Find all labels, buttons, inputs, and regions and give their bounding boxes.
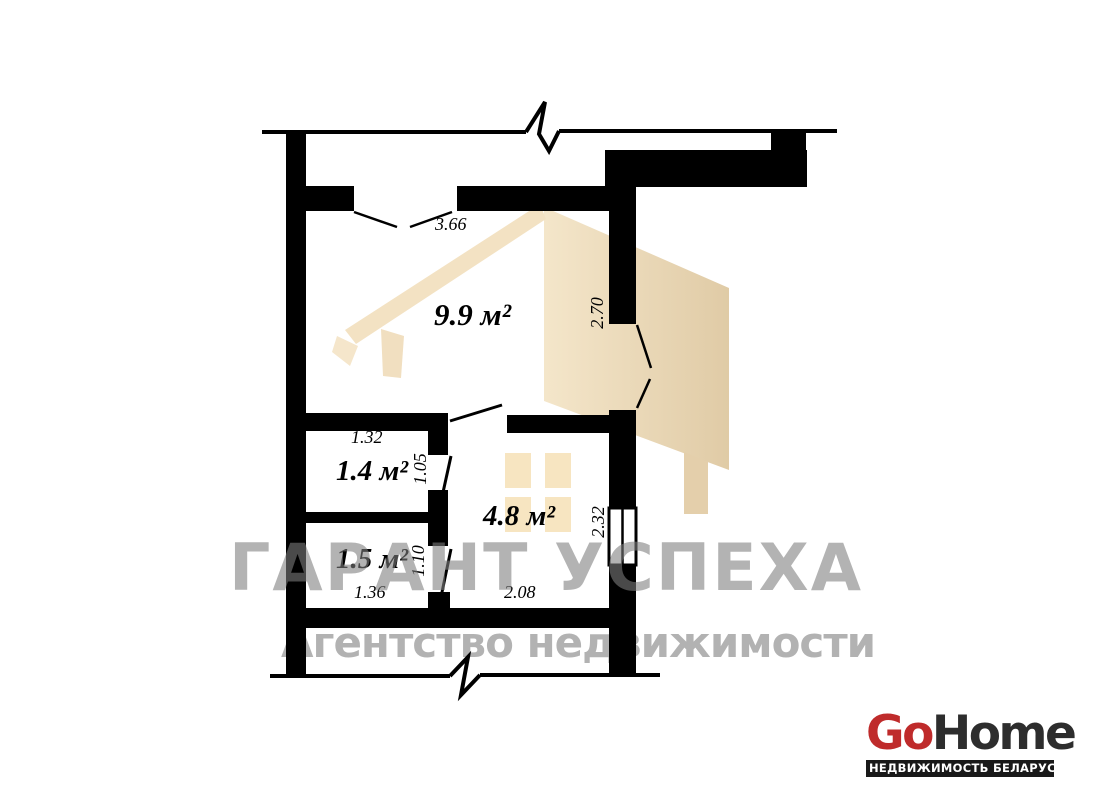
cut-line-top [262,102,837,151]
floor-plan-page: 9.9 м² 1.4 м² 1.5 м² 4.8 м² 3.66 2.70 1.… [0,0,1100,800]
dimension-label-1-05: 1.05 [409,429,431,509]
wall-top-right-stub [771,130,806,152]
wall-top-middle [457,186,636,211]
dimension-label-3-66: 3.66 [435,215,467,233]
logo-home-text: Home [932,706,1074,761]
break-symbol-top [526,102,559,151]
room-area-label-4-8: 4.8 м² [483,502,555,531]
wall-top-right-band [605,150,807,187]
wall-mid-h2 [507,415,612,433]
dimension-label-2-70: 2.70 [586,273,608,353]
wall-top-left-stub [306,186,354,211]
room-area-label-9-9: 9.9 м² [434,299,511,330]
room-area-label-1-4: 1.4 м² [336,457,408,486]
floor-plan-drawing [0,0,1100,800]
wall-col-a [428,413,448,455]
agency-watermark-title: ГАРАНТ УСПЕХА [229,536,863,601]
logo-tagline: НЕДВИЖИМОСТЬ БЕЛАРУСИ [866,760,1054,777]
wall-right-middle [609,410,636,508]
gohome-logo-text: GoHome [866,710,1056,757]
agency-watermark-subtitle: Агентство недвижимости [281,622,875,664]
dimension-label-1-32: 1.32 [351,428,383,446]
wall-right-upper [609,211,636,324]
gohome-logo: GoHome НЕДВИЖИМОСТЬ БЕЛАРУСИ [866,710,1056,777]
logo-go-text: Go [866,706,932,761]
